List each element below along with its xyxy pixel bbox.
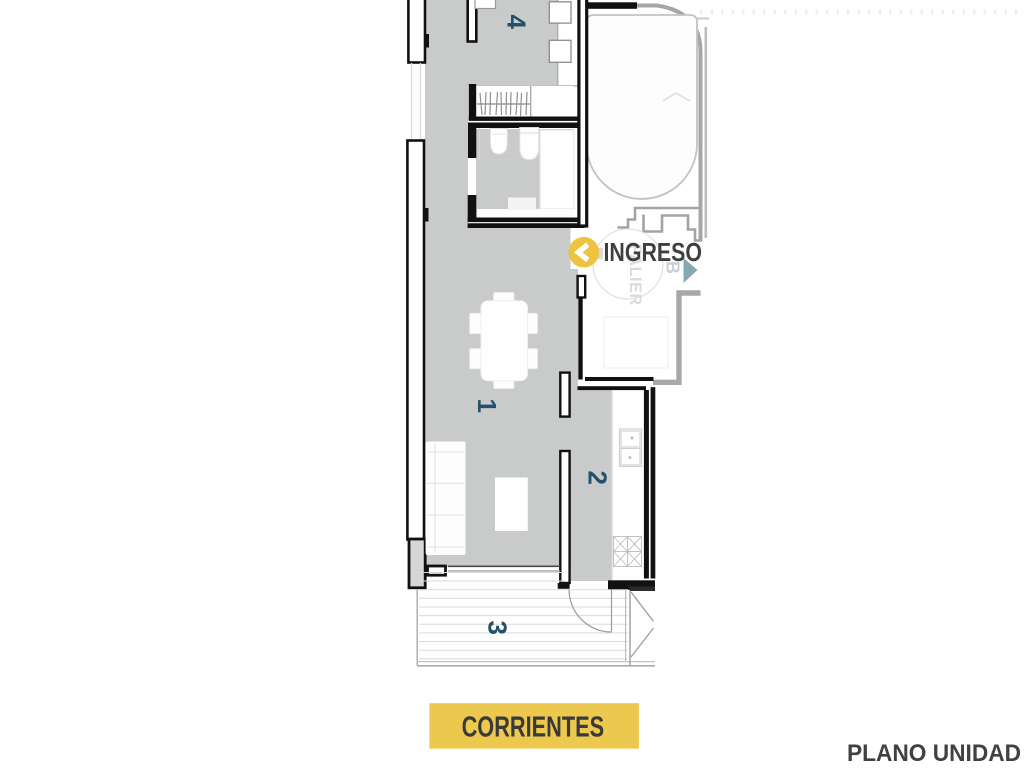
svg-text:INGRESO: INGRESO xyxy=(604,237,703,267)
svg-text:CORRIENTES: CORRIENTES xyxy=(462,711,604,743)
svg-text:1: 1 xyxy=(472,399,502,413)
svg-text:4: 4 xyxy=(502,15,532,30)
svg-text:PLANO UNIDAD: PLANO UNIDAD xyxy=(847,740,1021,767)
svg-text:2: 2 xyxy=(583,471,613,485)
svg-text:3: 3 xyxy=(483,621,513,635)
